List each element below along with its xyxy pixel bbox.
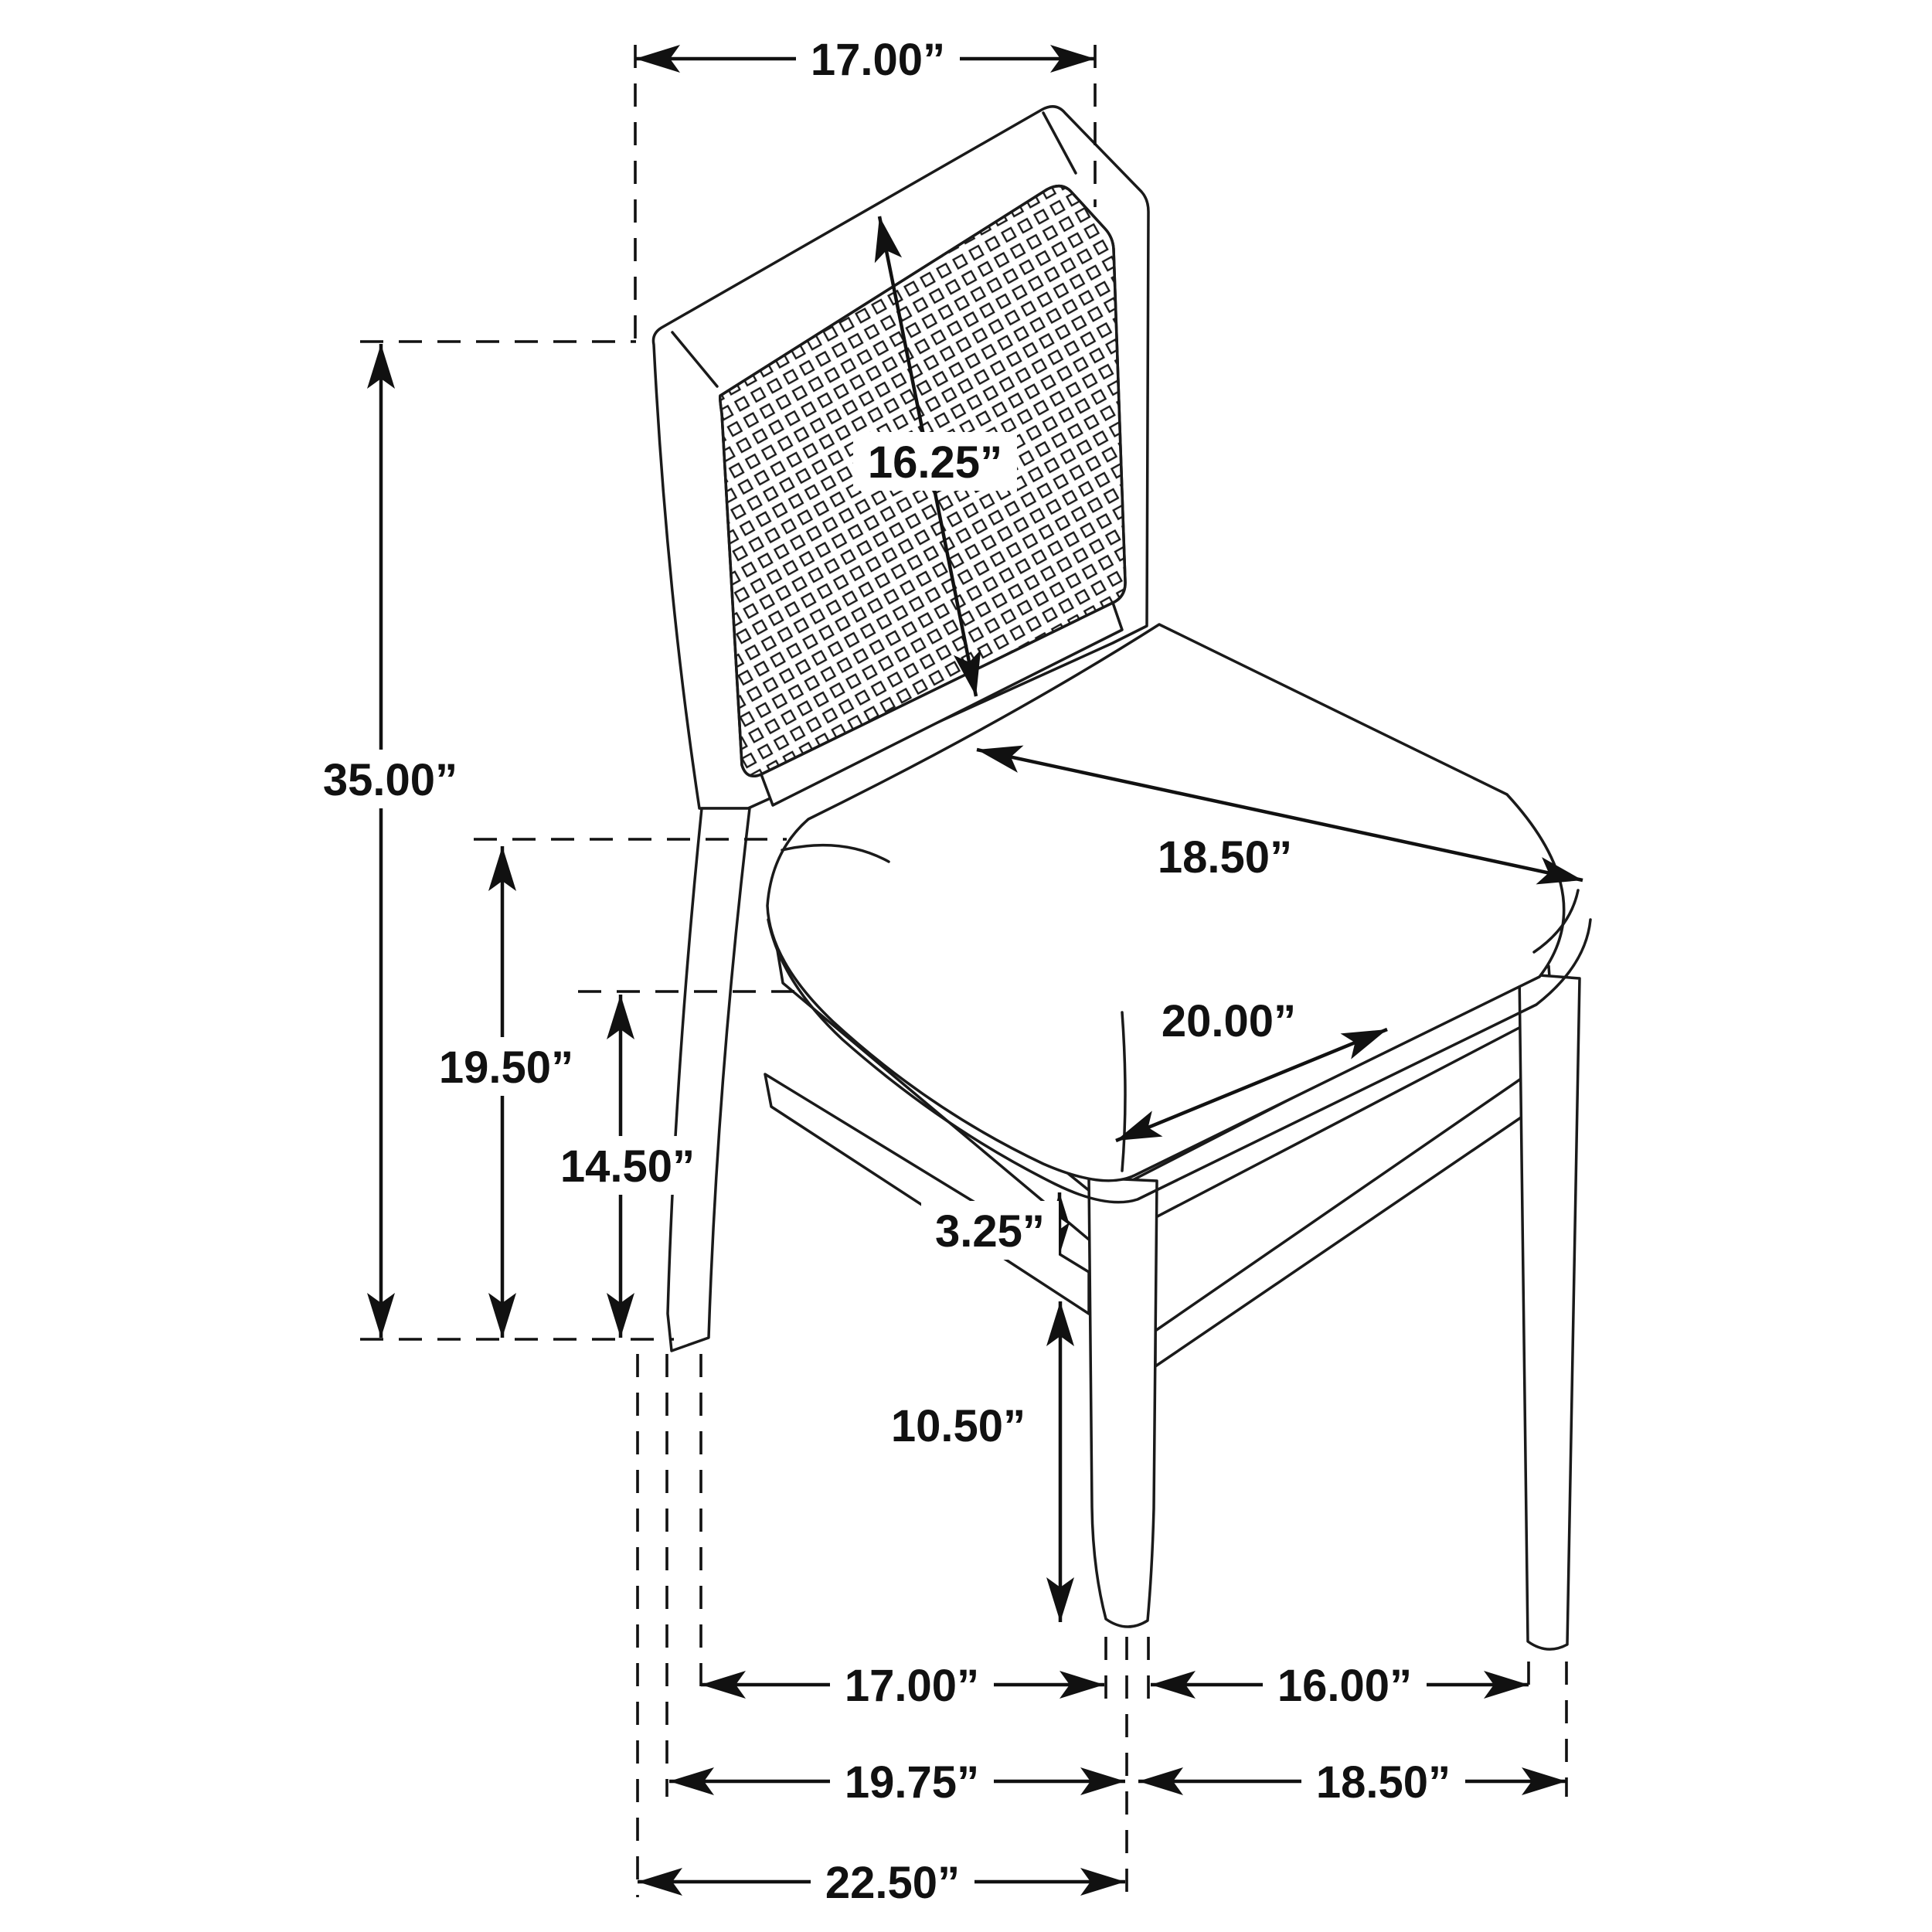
dimension-label: 35.00” <box>323 755 457 805</box>
dimension-label: 14.50” <box>560 1141 695 1192</box>
dimension-label: 3.25” <box>935 1206 1045 1257</box>
dim-stretcher-clearance: 10.50” <box>876 1301 1060 1622</box>
chair-dimension-diagram: 17.00” 35.00” 19.50” 14.50” 16.25” 18.50… <box>0 0 1932 1932</box>
dimension-label: 22.50” <box>825 1858 960 1908</box>
dimension-label: 19.75” <box>845 1757 979 1808</box>
dim-rail-stretcher-gap: 3.25” <box>921 1192 1060 1260</box>
front-left-leg <box>1089 1178 1157 1627</box>
dim-leg-gap-front: 16.00” <box>1151 1655 1529 1714</box>
chair-drawing <box>653 107 1590 1649</box>
dimension-label: 19.50” <box>439 1043 573 1093</box>
dimension-label: 18.50” <box>1316 1757 1451 1808</box>
front-right-leg <box>1519 974 1580 1649</box>
chair-dimension-diagram-page: 17.00” 35.00” 19.50” 14.50” 16.25” 18.50… <box>0 0 1932 1932</box>
dim-overall-depth: 22.50” <box>638 1852 1125 1911</box>
dimension-label: 17.00” <box>845 1661 979 1711</box>
dim-leg-centers-side: 19.75” <box>669 1752 1125 1811</box>
dimension-label: 18.50” <box>1158 832 1292 883</box>
dimension-label: 17.00” <box>811 35 945 85</box>
dimension-label: 20.00” <box>1162 996 1296 1046</box>
dimension-label: 16.25” <box>868 437 1002 488</box>
dim-leg-gap-side: 17.00” <box>701 1655 1104 1714</box>
dimension-label: 16.00” <box>1277 1661 1412 1711</box>
dimension-label: 10.50” <box>891 1401 1026 1451</box>
back-leg <box>668 808 750 1351</box>
dim-leg-centers-front: 18.50” <box>1138 1752 1566 1811</box>
